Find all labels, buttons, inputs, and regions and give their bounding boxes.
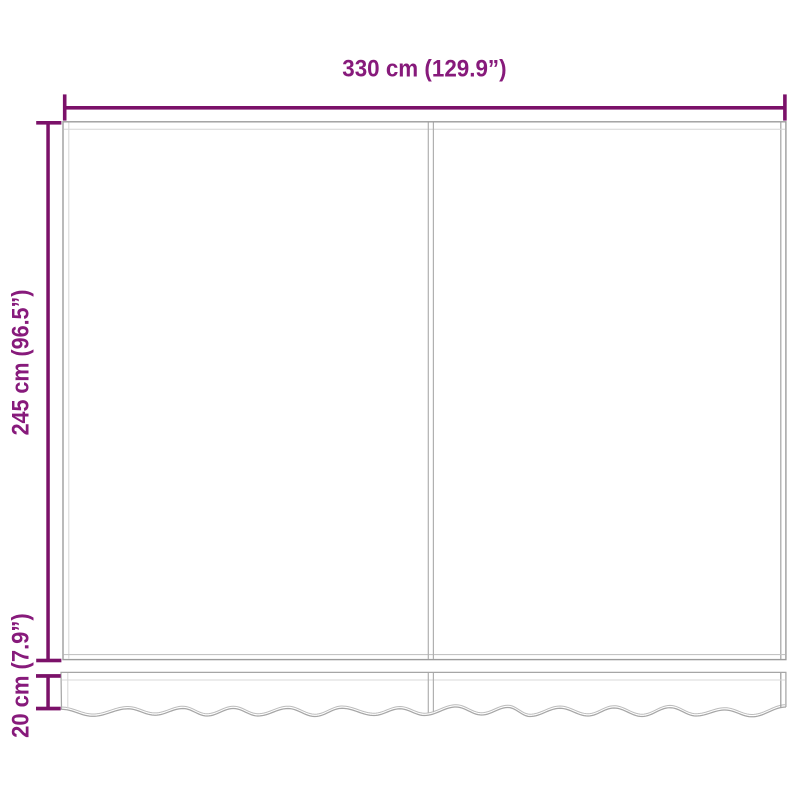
svg-text:20 cm (7.9”): 20 cm (7.9”) — [7, 613, 34, 738]
svg-text:245 cm (96.5”): 245 cm (96.5”) — [6, 290, 34, 436]
svg-text:330 cm (129.9”): 330 cm (129.9”) — [342, 55, 506, 82]
